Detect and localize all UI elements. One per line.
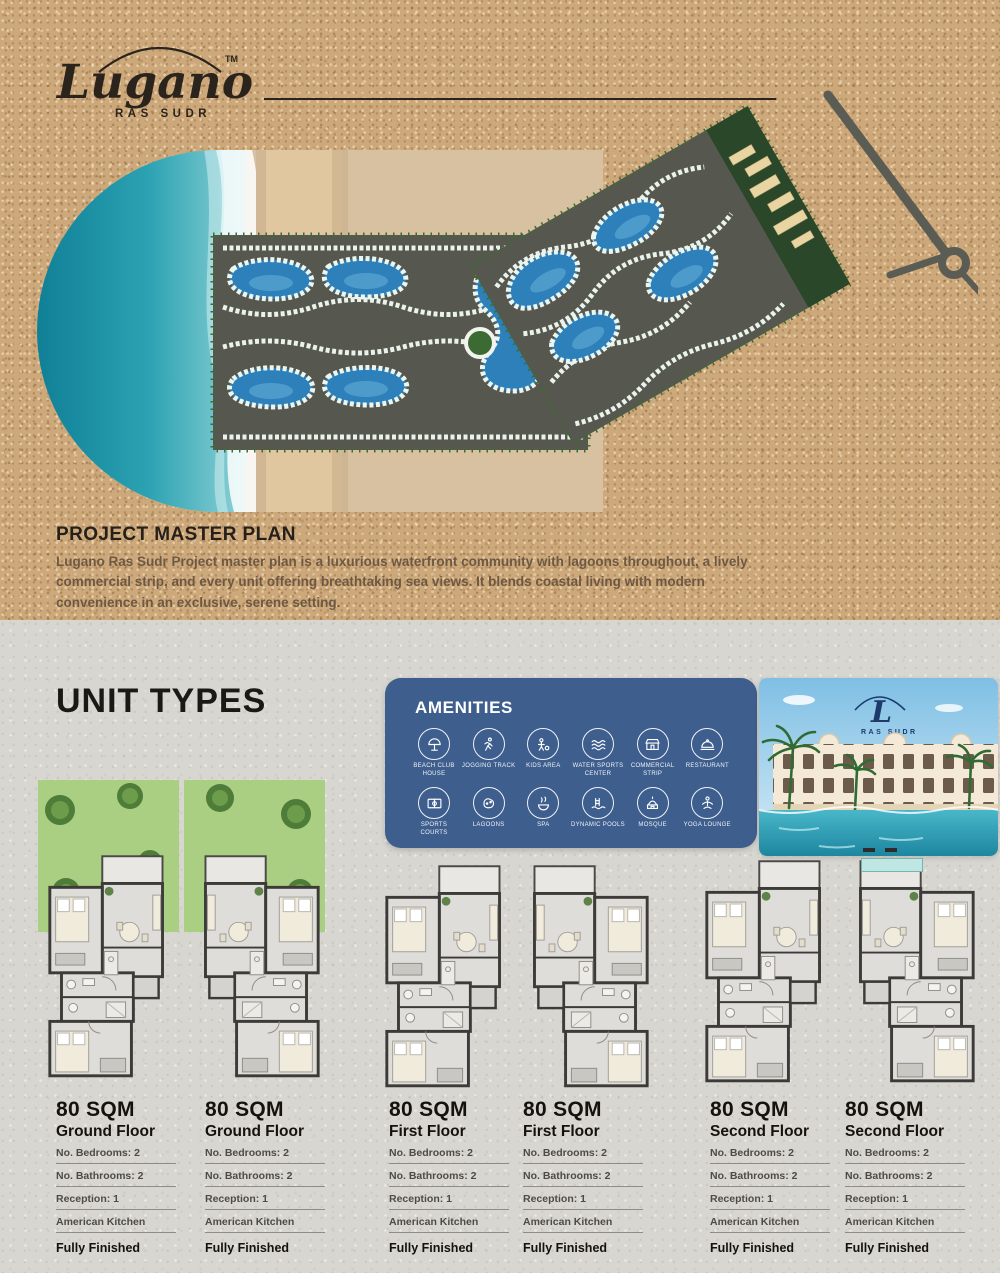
unit-area: 80 SQM: [389, 1098, 509, 1122]
jogging-track-icon: [473, 728, 505, 760]
unit-bathrooms: No. Bathrooms: 2: [523, 1164, 643, 1187]
unit-kitchen: American Kitchen: [710, 1210, 830, 1233]
beach-club-icon: [418, 728, 450, 760]
commercial-strip-icon: [637, 728, 669, 760]
unit-finish: Fully Finished: [56, 1233, 176, 1255]
amenity-item: Water Sports Center: [571, 728, 625, 778]
unit-bedrooms: No. Bedrooms: 2: [389, 1141, 509, 1164]
kids-area-icon: [527, 728, 559, 760]
unit-floor: First Floor: [523, 1123, 643, 1141]
pool: [759, 810, 998, 856]
amenity-item: Spa: [516, 787, 570, 837]
masterplan-image: [28, 85, 978, 515]
water-sports-icon: [582, 728, 614, 760]
floor-plan-ground-left: [44, 853, 180, 1081]
amenity-item: Sports Courts: [407, 787, 461, 837]
unit-area: 80 SQM: [845, 1098, 965, 1122]
unit-reception: Reception: 1: [523, 1187, 643, 1210]
resort-photo-image: L RAS SUDR: [759, 678, 998, 856]
yoga-lounge-icon: [691, 787, 723, 819]
amenity-item: Lagoons: [462, 787, 516, 837]
floor-plan-first-left: [381, 863, 517, 1091]
floor-plan-ground-right: [188, 853, 324, 1081]
amenity-label: Yoga Lounge: [684, 822, 731, 836]
unit-finish: Fully Finished: [523, 1233, 643, 1255]
amenity-item: Dynamic Pools: [571, 787, 625, 837]
masterplan-title: PROJECT MASTER PLAN: [56, 524, 296, 546]
amenity-label: Restaurant: [686, 763, 729, 777]
brand-tm: TM: [225, 54, 238, 64]
unit-reception: Reception: 1: [845, 1187, 965, 1210]
amenity-label: Spa: [537, 822, 549, 836]
unit-types-title: UNIT TYPES: [56, 682, 266, 721]
unit-area: 80 SQM: [205, 1098, 325, 1122]
dynamic-pools-icon: [582, 787, 614, 819]
unit-spec-block: 80 SQM Second Floor No. Bedrooms: 2 No. …: [845, 1098, 965, 1255]
amenity-label: Mosque: [638, 822, 666, 836]
unit-bathrooms: No. Bathrooms: 2: [56, 1164, 176, 1187]
spa-icon: [527, 787, 559, 819]
amenities-panel: AMENITIES Beach Club House Jogging Track: [385, 678, 757, 848]
unit-spec-block: 80 SQM First Floor No. Bedrooms: 2 No. B…: [389, 1098, 509, 1255]
amenity-label: Dynamic Pools: [571, 822, 625, 836]
lagoons-icon: [473, 787, 505, 819]
unit-spec-block: 80 SQM Second Floor No. Bedrooms: 2 No. …: [710, 1098, 830, 1255]
restaurant-icon: [691, 728, 723, 760]
amenity-label: Beach Club House: [407, 763, 461, 778]
unit-bathrooms: No. Bathrooms: 2: [389, 1164, 509, 1187]
photo-monogram: L: [870, 695, 892, 730]
sports-courts-icon: [418, 787, 450, 819]
unit-bedrooms: No. Bedrooms: 2: [845, 1141, 965, 1164]
brochure-page: Lugano TM RAS SUDR: [0, 0, 1000, 1273]
amenity-label: Kids Area: [526, 763, 560, 777]
unit-floor: First Floor: [389, 1123, 509, 1141]
unit-kitchen: American Kitchen: [205, 1210, 325, 1233]
unit-finish: Fully Finished: [205, 1233, 325, 1255]
floor-plan-second-left: [701, 858, 837, 1086]
amenity-label: Sports Courts: [407, 822, 461, 837]
unit-floor: Ground Floor: [205, 1123, 325, 1141]
mosque-icon: [637, 787, 669, 819]
resort-photo: L RAS SUDR: [759, 678, 998, 856]
unit-bathrooms: No. Bathrooms: 2: [205, 1164, 325, 1187]
floor-plan-first-right: [517, 863, 653, 1091]
unit-floor: Second Floor: [845, 1123, 965, 1141]
amenity-label: Commercial Strip: [626, 763, 680, 778]
unit-floor: Ground Floor: [56, 1123, 176, 1141]
unit-kitchen: American Kitchen: [389, 1210, 509, 1233]
unit-reception: Reception: 1: [205, 1187, 325, 1210]
amenity-label: Jogging Track: [462, 763, 515, 777]
unit-floor: Second Floor: [710, 1123, 830, 1141]
unit-bathrooms: No. Bathrooms: 2: [710, 1164, 830, 1187]
unit-spec-block: 80 SQM First Floor No. Bedrooms: 2 No. B…: [523, 1098, 643, 1255]
unit-kitchen: American Kitchen: [56, 1210, 176, 1233]
masterplan-section: Lugano TM RAS SUDR: [0, 0, 1000, 620]
central-plaza: [466, 329, 494, 357]
unit-bathrooms: No. Bathrooms: 2: [845, 1164, 965, 1187]
unit-kitchen: American Kitchen: [845, 1210, 965, 1233]
unit-area: 80 SQM: [710, 1098, 830, 1122]
unit-reception: Reception: 1: [56, 1187, 176, 1210]
unit-bedrooms: No. Bedrooms: 2: [205, 1141, 325, 1164]
amenity-item: Commercial Strip: [626, 728, 680, 778]
access-road: [828, 95, 978, 296]
roof-pergola: [861, 858, 923, 872]
unit-bedrooms: No. Bedrooms: 2: [56, 1141, 176, 1164]
amenity-label: Water Sports Center: [571, 763, 625, 778]
unit-finish: Fully Finished: [389, 1233, 509, 1255]
amenity-item: Restaurant: [680, 728, 734, 778]
unit-kitchen: American Kitchen: [523, 1210, 643, 1233]
amenities-title: AMENITIES: [415, 698, 513, 718]
amenity-item: Kids Area: [516, 728, 570, 778]
amenity-item: Yoga Lounge: [680, 787, 734, 837]
amenity-item: Mosque: [626, 787, 680, 837]
unit-area: 80 SQM: [523, 1098, 643, 1122]
unit-finish: Fully Finished: [845, 1233, 965, 1255]
masterplan-description: Lugano Ras Sudr Project master plan is a…: [56, 552, 786, 613]
unit-spec-block: 80 SQM Ground Floor No. Bedrooms: 2 No. …: [56, 1098, 176, 1255]
unit-spec-block: 80 SQM Ground Floor No. Bedrooms: 2 No. …: [205, 1098, 325, 1255]
amenity-item: Beach Club House: [407, 728, 461, 778]
unit-reception: Reception: 1: [389, 1187, 509, 1210]
resort-building: [773, 733, 998, 810]
unit-bedrooms: No. Bedrooms: 2: [710, 1141, 830, 1164]
unit-bedrooms: No. Bedrooms: 2: [523, 1141, 643, 1164]
amenity-label: Lagoons: [473, 822, 505, 836]
unit-reception: Reception: 1: [710, 1187, 830, 1210]
unit-finish: Fully Finished: [710, 1233, 830, 1255]
unit-types-section: UNIT TYPES AMENITIES Beach Club House Jo…: [0, 620, 1000, 1273]
unit-area: 80 SQM: [56, 1098, 176, 1122]
floor-plan-second-right: [843, 858, 979, 1086]
amenities-grid: Beach Club House Jogging Track Kids Area: [407, 728, 735, 837]
amenity-item: Jogging Track: [462, 728, 516, 778]
